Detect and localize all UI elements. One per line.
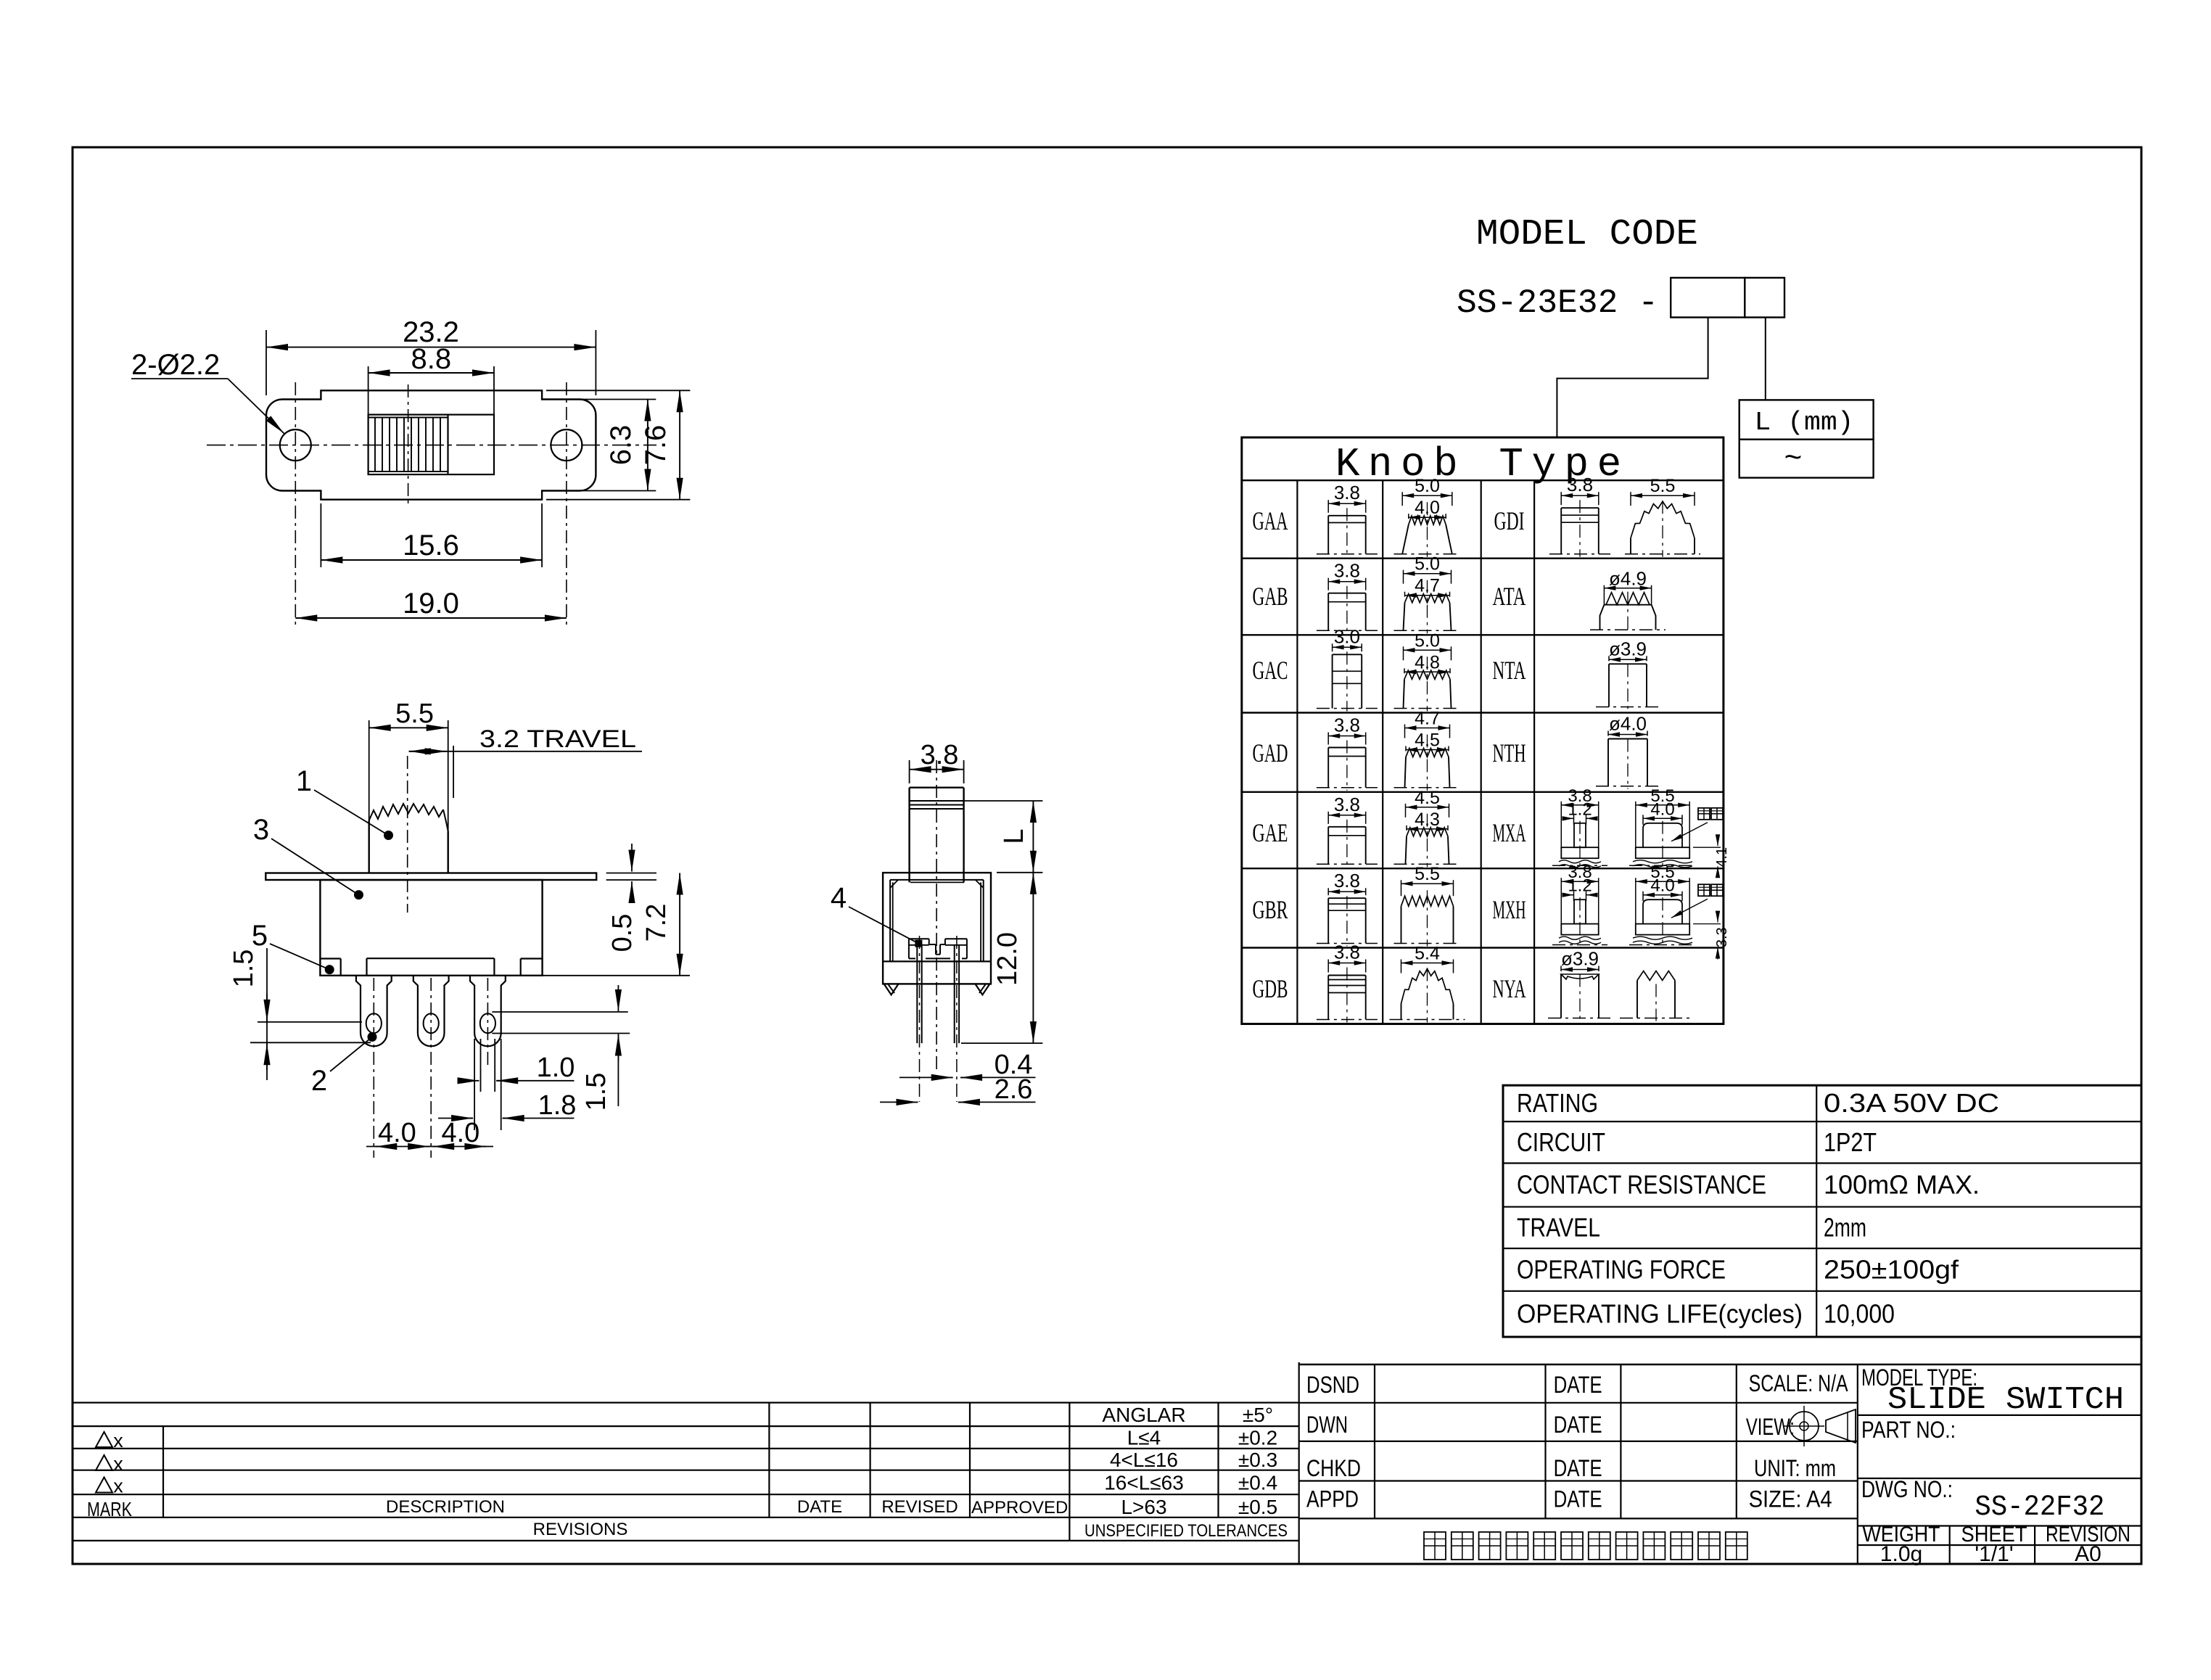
- svg-text:±0.2: ±0.2: [1238, 1427, 1277, 1449]
- svg-text:100mΩ MAX.: 100mΩ MAX.: [1824, 1170, 1980, 1200]
- svg-text:RATING: RATING: [1517, 1088, 1598, 1118]
- svg-text:GDI: GDI: [1494, 506, 1525, 535]
- svg-text:GAD: GAD: [1253, 738, 1288, 767]
- svg-text:GAB: GAB: [1253, 582, 1288, 611]
- svg-text:ø3.9: ø3.9: [1609, 638, 1647, 659]
- svg-text:ANGLAR: ANGLAR: [1102, 1404, 1185, 1426]
- svg-text:5.0: 5.0: [1415, 476, 1440, 496]
- svg-text:~: ~: [1784, 442, 1802, 477]
- svg-text:8.8: 8.8: [411, 343, 451, 375]
- svg-text:3.2 TRAVEL: 3.2 TRAVEL: [479, 725, 636, 753]
- svg-text:TRAVEL: TRAVEL: [1517, 1212, 1600, 1242]
- svg-text:UNSPECIFIED TOLERANCES: UNSPECIFIED TOLERANCES: [1084, 1521, 1288, 1541]
- svg-text:±0.3: ±0.3: [1238, 1449, 1277, 1471]
- svg-text:15.6: 15.6: [403, 530, 459, 561]
- svg-text:x: x: [113, 1475, 123, 1497]
- svg-text:4.8: 4.8: [1415, 652, 1440, 672]
- svg-text:DATE: DATE: [1554, 1412, 1602, 1438]
- svg-text:2-Ø2.2: 2-Ø2.2: [131, 349, 220, 381]
- svg-text:MXH: MXH: [1493, 895, 1526, 924]
- svg-text:L≤4: L≤4: [1127, 1427, 1161, 1449]
- svg-text:6.3: 6.3: [605, 425, 637, 466]
- svg-text:5.5: 5.5: [1415, 864, 1440, 884]
- svg-text:MXA: MXA: [1493, 818, 1526, 847]
- svg-text:CIRCUIT: CIRCUIT: [1517, 1127, 1605, 1157]
- svg-text:NTA: NTA: [1493, 656, 1526, 685]
- svg-text:L>63: L>63: [1121, 1496, 1166, 1518]
- svg-text:3.8: 3.8: [1567, 474, 1593, 495]
- svg-text:NYA: NYA: [1493, 974, 1526, 1003]
- svg-text:GAE: GAE: [1253, 818, 1288, 847]
- svg-text:4.0: 4.0: [441, 1118, 479, 1148]
- svg-text:DWN: DWN: [1306, 1412, 1348, 1438]
- svg-text:x: x: [113, 1453, 123, 1475]
- svg-text:4.3: 4.3: [1415, 810, 1440, 830]
- svg-text:12.0: 12.0: [992, 932, 1023, 986]
- svg-text:'1/1': '1/1': [1975, 1542, 2013, 1566]
- svg-text:DSND: DSND: [1306, 1372, 1359, 1398]
- svg-text:UNIT: mm: UNIT: mm: [1754, 1455, 1836, 1481]
- svg-text:SCALE: N/A: SCALE: N/A: [1749, 1370, 1849, 1396]
- svg-text:SS-22F32: SS-22F32: [1975, 1491, 2104, 1524]
- svg-text:2mm: 2mm: [1824, 1212, 1866, 1242]
- svg-text:GBR: GBR: [1253, 895, 1288, 924]
- svg-text:ø4.0: ø4.0: [1609, 713, 1647, 735]
- svg-text:10,000: 10,000: [1824, 1298, 1895, 1328]
- svg-text:CONTACT RESISTANCE: CONTACT RESISTANCE: [1517, 1170, 1766, 1200]
- svg-text:3.8: 3.8: [1334, 942, 1360, 963]
- svg-text:3.0: 3.0: [1334, 625, 1360, 647]
- svg-text:3: 3: [253, 814, 269, 846]
- svg-text:0.5: 0.5: [607, 914, 638, 952]
- svg-text:DESCRIPTION: DESCRIPTION: [386, 1497, 505, 1517]
- svg-text:1.5: 1.5: [581, 1073, 612, 1111]
- svg-text:4<L≤16: 4<L≤16: [1110, 1449, 1178, 1471]
- svg-text:1: 1: [296, 765, 312, 797]
- svg-text:3.8: 3.8: [1334, 870, 1360, 892]
- svg-text:OPERATING LIFE(cycles): OPERATING LIFE(cycles): [1517, 1298, 1803, 1328]
- svg-text:SIZE: A4: SIZE: A4: [1749, 1486, 1832, 1512]
- svg-text:4.5: 4.5: [1415, 788, 1440, 808]
- svg-text:SLIDE SWITCH: SLIDE SWITCH: [1887, 1382, 2124, 1418]
- svg-text:7.2: 7.2: [641, 904, 672, 942]
- svg-text:7.6: 7.6: [640, 425, 672, 466]
- svg-text:4: 4: [831, 882, 847, 914]
- svg-text:5.0: 5.0: [1415, 554, 1440, 575]
- svg-text:2.6: 2.6: [995, 1074, 1033, 1105]
- svg-text:MARK: MARK: [87, 1498, 132, 1520]
- svg-text:ø3.9: ø3.9: [1561, 948, 1599, 970]
- svg-text:1.8: 1.8: [538, 1090, 577, 1121]
- svg-text:DATE: DATE: [1554, 1455, 1602, 1481]
- svg-text:5.5: 5.5: [1650, 476, 1676, 496]
- svg-text:19.0: 19.0: [403, 588, 459, 619]
- svg-text:1.0: 1.0: [537, 1053, 575, 1083]
- svg-text:GAC: GAC: [1253, 656, 1288, 685]
- svg-text:4.0: 4.0: [1650, 799, 1674, 819]
- svg-text:MODEL CODE: MODEL CODE: [1476, 214, 1698, 255]
- svg-text:ATA: ATA: [1493, 582, 1526, 611]
- svg-text:L: L: [999, 828, 1029, 844]
- svg-text:L (mm): L (mm): [1755, 408, 1854, 437]
- svg-text:GAA: GAA: [1253, 506, 1288, 535]
- svg-text:CHKD: CHKD: [1306, 1455, 1361, 1481]
- svg-text:NTH: NTH: [1493, 738, 1526, 767]
- svg-text:3.8: 3.8: [1334, 560, 1360, 582]
- svg-text:REVISED: REVISED: [881, 1497, 958, 1517]
- svg-text:5.4: 5.4: [1415, 944, 1440, 964]
- svg-text:4.7: 4.7: [1415, 709, 1440, 729]
- svg-text:PART NO.:: PART NO.:: [1861, 1417, 1956, 1443]
- svg-text:OPERATING FORCE: OPERATING FORCE: [1517, 1254, 1726, 1284]
- svg-text:ø4.9: ø4.9: [1609, 568, 1647, 590]
- svg-text:±0.5: ±0.5: [1238, 1496, 1277, 1518]
- svg-text:4.0: 4.0: [1650, 876, 1674, 896]
- svg-text:±0.4: ±0.4: [1238, 1472, 1277, 1494]
- svg-text:5.5: 5.5: [395, 699, 434, 729]
- svg-text:4.0: 4.0: [1415, 498, 1440, 518]
- svg-text:250±100gf: 250±100gf: [1824, 1254, 1959, 1284]
- svg-text:1.2: 1.2: [1568, 876, 1592, 896]
- svg-text:5.0: 5.0: [1415, 630, 1440, 651]
- svg-text:APPROVED: APPROVED: [971, 1498, 1068, 1518]
- svg-text:3.8: 3.8: [1334, 482, 1360, 503]
- svg-text:4.7: 4.7: [1415, 576, 1440, 596]
- svg-text:3.3: 3.3: [1714, 927, 1730, 947]
- svg-text:DATE: DATE: [1554, 1486, 1602, 1512]
- svg-text:3.8: 3.8: [1334, 715, 1360, 736]
- svg-text:DATE: DATE: [1554, 1372, 1602, 1398]
- svg-text:1P2T: 1P2T: [1824, 1127, 1877, 1157]
- svg-text:SS-23E32 -: SS-23E32 -: [1457, 284, 1658, 322]
- svg-text:VIEW:: VIEW:: [1746, 1414, 1795, 1440]
- svg-text:1.0g: 1.0g: [1880, 1542, 1922, 1566]
- svg-text:3.8: 3.8: [1334, 794, 1360, 815]
- svg-text:APPD: APPD: [1306, 1486, 1359, 1512]
- svg-text:A0: A0: [2075, 1542, 2101, 1566]
- svg-text:DATE: DATE: [797, 1497, 842, 1517]
- svg-text:4.0: 4.0: [378, 1118, 416, 1148]
- svg-text:0.3A 50V DC: 0.3A 50V DC: [1824, 1088, 1999, 1118]
- svg-text:GDB: GDB: [1253, 974, 1288, 1003]
- svg-text:DWG NO.:: DWG NO.:: [1861, 1476, 1953, 1502]
- svg-text:5: 5: [252, 920, 268, 952]
- svg-text:4.1: 4.1: [1714, 847, 1730, 868]
- svg-text:1.5: 1.5: [228, 950, 259, 988]
- svg-text:16<L≤63: 16<L≤63: [1104, 1472, 1184, 1494]
- svg-text:3.8: 3.8: [921, 740, 959, 770]
- svg-text:x: x: [113, 1430, 123, 1452]
- svg-text:4.5: 4.5: [1415, 730, 1440, 751]
- svg-text:1.2: 1.2: [1568, 799, 1592, 819]
- svg-text:2: 2: [311, 1065, 327, 1097]
- svg-text:REVISIONS: REVISIONS: [533, 1520, 628, 1539]
- svg-text:±5°: ±5°: [1243, 1404, 1273, 1426]
